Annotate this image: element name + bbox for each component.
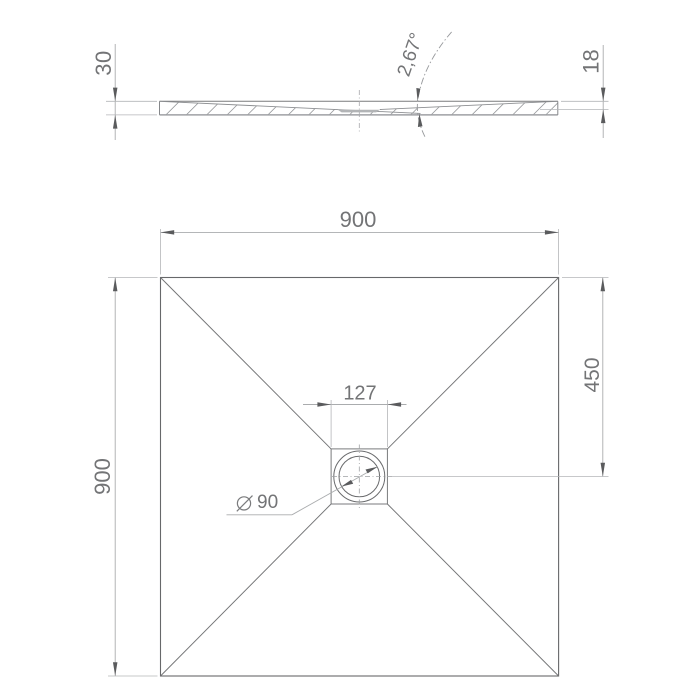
svg-text:30: 30 [91, 50, 116, 75]
svg-text:127: 127 [343, 383, 376, 405]
svg-text:900: 900 [340, 207, 377, 232]
svg-text:900: 900 [90, 458, 115, 495]
svg-text:18: 18 [579, 49, 604, 73]
svg-text:450: 450 [581, 357, 604, 392]
svg-text:90: 90 [257, 492, 278, 513]
